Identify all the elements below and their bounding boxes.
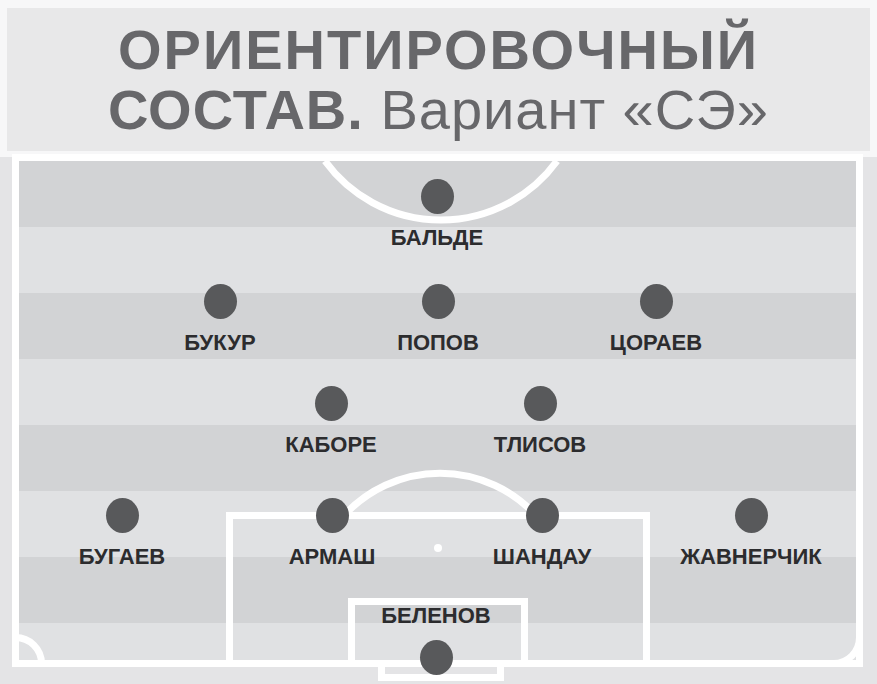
player-defender-2: АРМАШ xyxy=(242,498,422,568)
player-name: ЦОРАЕВ xyxy=(566,332,746,354)
player-name: АРМАШ xyxy=(242,546,422,568)
player-dot xyxy=(421,179,454,214)
player-attmid-2: ПОПОВ xyxy=(348,284,528,354)
player-defender-1: БУГАЕВ xyxy=(32,498,212,568)
player-goalkeeper: БЕЛЕНОВ xyxy=(346,605,526,675)
player-dot xyxy=(524,386,557,421)
player-dot xyxy=(735,498,768,533)
player-dot xyxy=(316,498,349,533)
player-forward-1: БАЛЬДЕ xyxy=(347,179,527,249)
player-midfield-2: ТЛИСОВ xyxy=(450,386,630,456)
player-dot xyxy=(106,498,139,533)
player-name: БУКУР xyxy=(130,332,310,354)
player-dot xyxy=(526,498,559,533)
player-dot xyxy=(420,640,453,675)
player-name: КАБОРЕ xyxy=(241,434,421,456)
player-dot xyxy=(204,284,237,319)
penalty-spot xyxy=(434,544,442,552)
player-name: БЕЛЕНОВ xyxy=(346,605,526,627)
player-attmid-1: БУКУР xyxy=(130,284,310,354)
corner-arc-left xyxy=(16,638,42,664)
player-name: ТЛИСОВ xyxy=(450,434,630,456)
player-name: ПОПОВ xyxy=(348,332,528,354)
player-name: ЖАВНЕРЧИК xyxy=(661,546,841,568)
player-midfield-1: КАБОРЕ xyxy=(241,386,421,456)
player-name: БУГАЕВ xyxy=(32,546,212,568)
player-defender-4: ЖАВНЕРЧИК xyxy=(661,498,841,568)
player-dot xyxy=(640,284,673,319)
player-dot xyxy=(422,284,455,319)
corner-arc-right xyxy=(834,638,860,664)
player-defender-3: ШАНДАУ xyxy=(452,498,632,568)
player-name: БАЛЬДЕ xyxy=(347,227,527,249)
player-attmid-3: ЦОРАЕВ xyxy=(566,284,746,354)
player-name: ШАНДАУ xyxy=(452,546,632,568)
player-dot xyxy=(315,386,348,421)
